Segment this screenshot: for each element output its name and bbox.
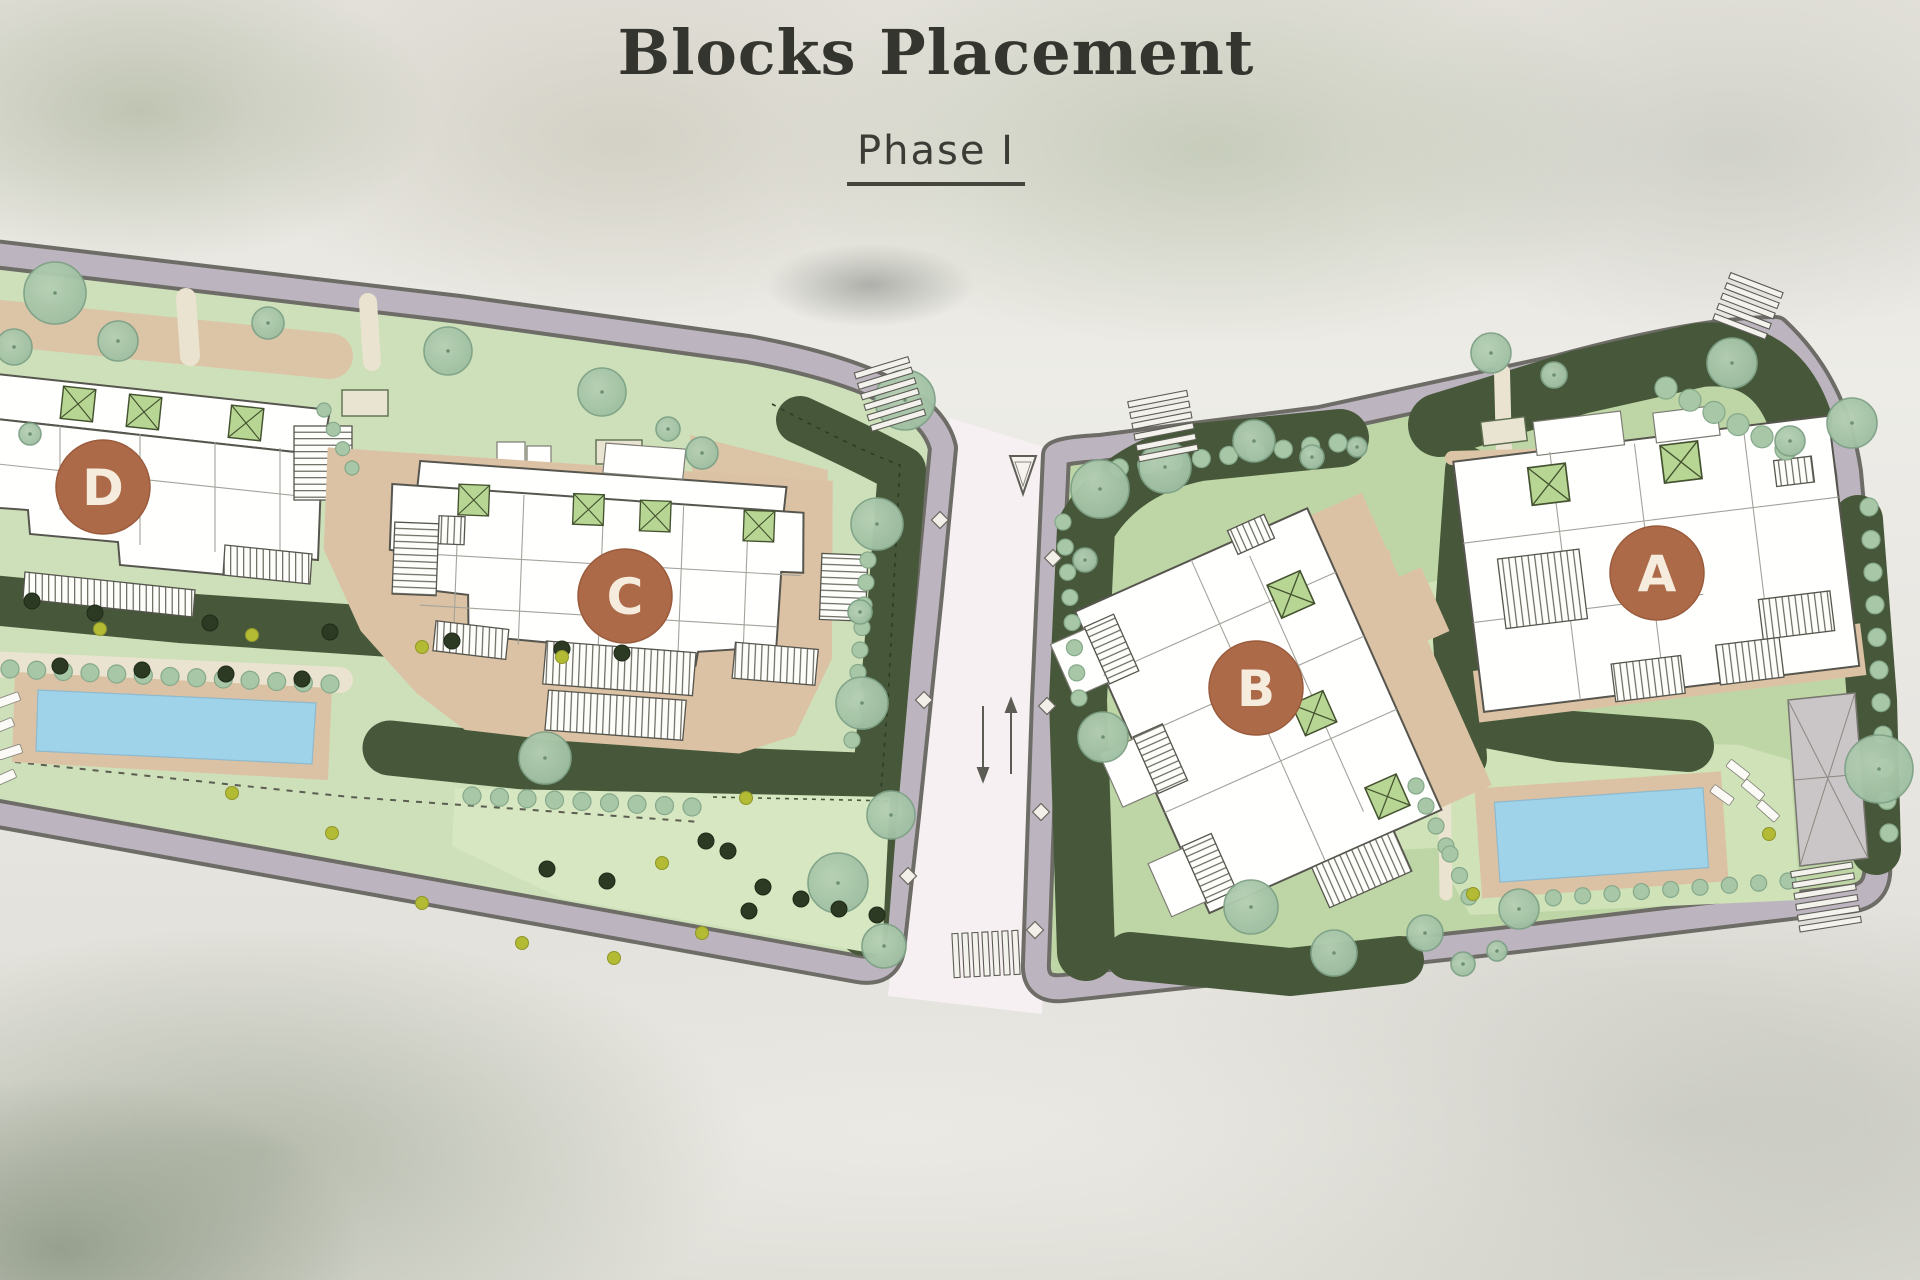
block-badge-a[interactable]: A	[1610, 526, 1704, 620]
pool-water	[36, 690, 316, 764]
block-b-label: B	[1237, 660, 1275, 718]
phase-label: Phase I	[847, 128, 1025, 186]
block-d-label: D	[82, 459, 124, 517]
pool-water	[1494, 788, 1708, 882]
page-title: Blocks Placement	[618, 16, 1255, 89]
pool-right	[1474, 771, 1728, 898]
block-c-label: C	[607, 568, 644, 626]
page-title-wrap: Blocks Placement	[618, 16, 1255, 89]
phase-label-wrap: Phase I	[847, 128, 1025, 174]
block-badge-b[interactable]: B	[1209, 641, 1303, 735]
block-badge-d[interactable]: D	[56, 440, 150, 534]
block-a-label: A	[1638, 545, 1677, 603]
site-plan-svg: A B C D	[0, 0, 1920, 1280]
block-badge-c[interactable]: C	[578, 549, 672, 643]
site-plan-page: A B C D Blocks Placement Phase I	[0, 0, 1920, 1280]
